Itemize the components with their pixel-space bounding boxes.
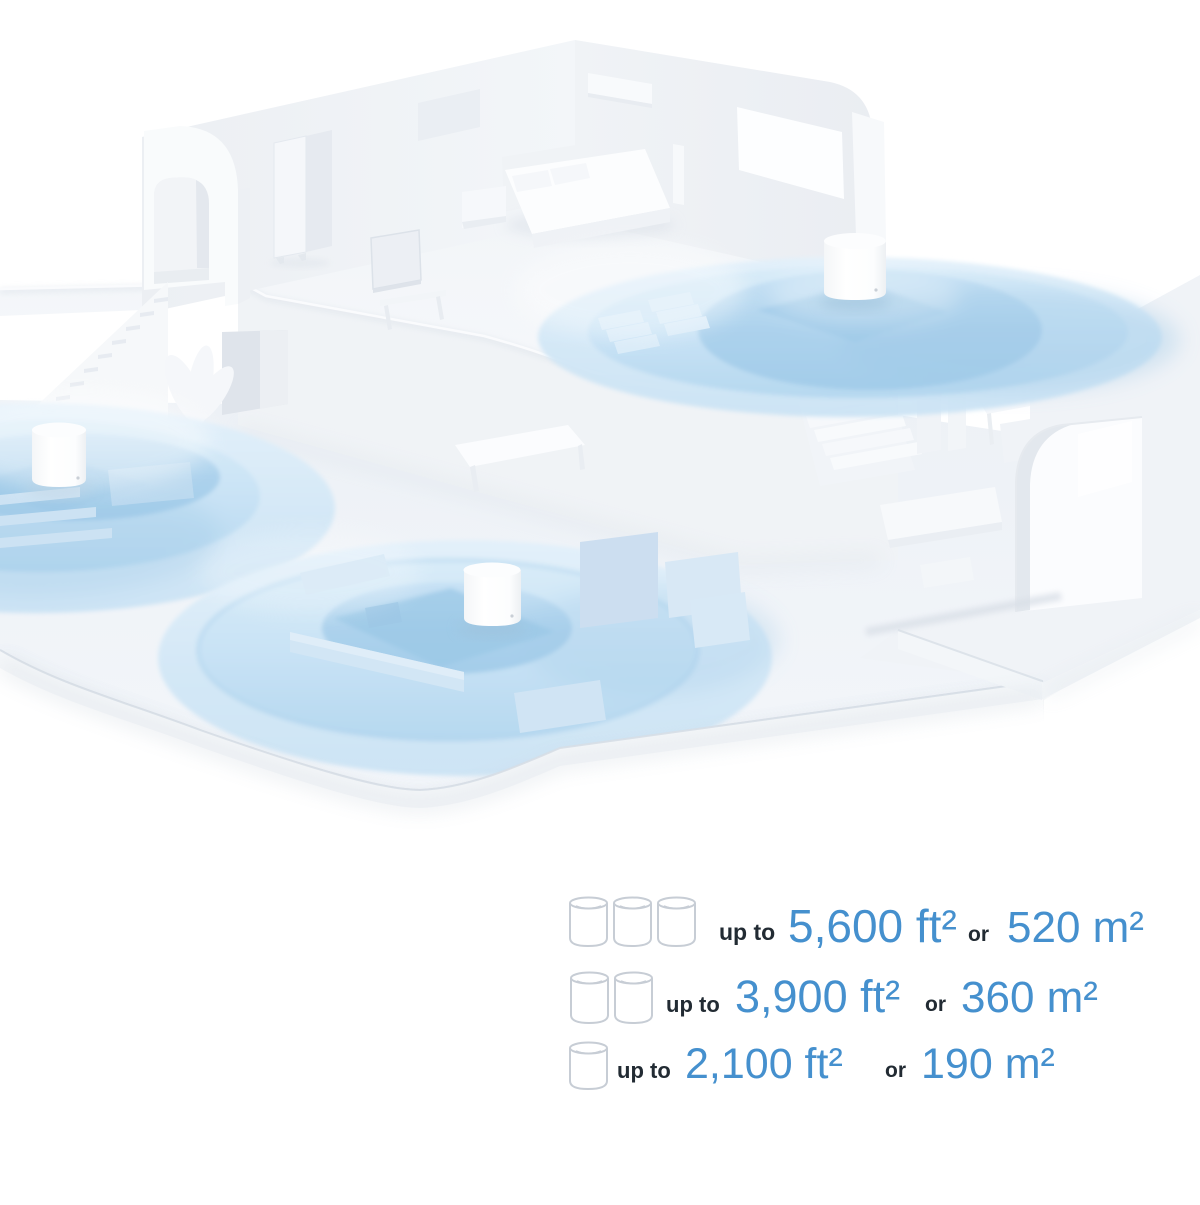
svg-text:or: or bbox=[885, 1059, 906, 1082]
svg-text:3,900 ft²: 3,900 ft² bbox=[735, 971, 900, 1022]
svg-text:360 m²: 360 m² bbox=[961, 973, 1098, 1022]
svg-text:520 m²: 520 m² bbox=[1007, 903, 1144, 952]
svg-text:or: or bbox=[925, 993, 946, 1016]
svg-text:190 m²: 190 m² bbox=[921, 1040, 1055, 1088]
svg-text:5,600 ft²: 5,600 ft² bbox=[788, 900, 957, 952]
svg-text:up to: up to bbox=[719, 919, 775, 945]
svg-text:up to: up to bbox=[617, 1058, 671, 1083]
svg-text:2,100 ft²: 2,100 ft² bbox=[685, 1040, 843, 1088]
svg-text:or: or bbox=[968, 923, 989, 946]
svg-text:up to: up to bbox=[666, 992, 720, 1017]
